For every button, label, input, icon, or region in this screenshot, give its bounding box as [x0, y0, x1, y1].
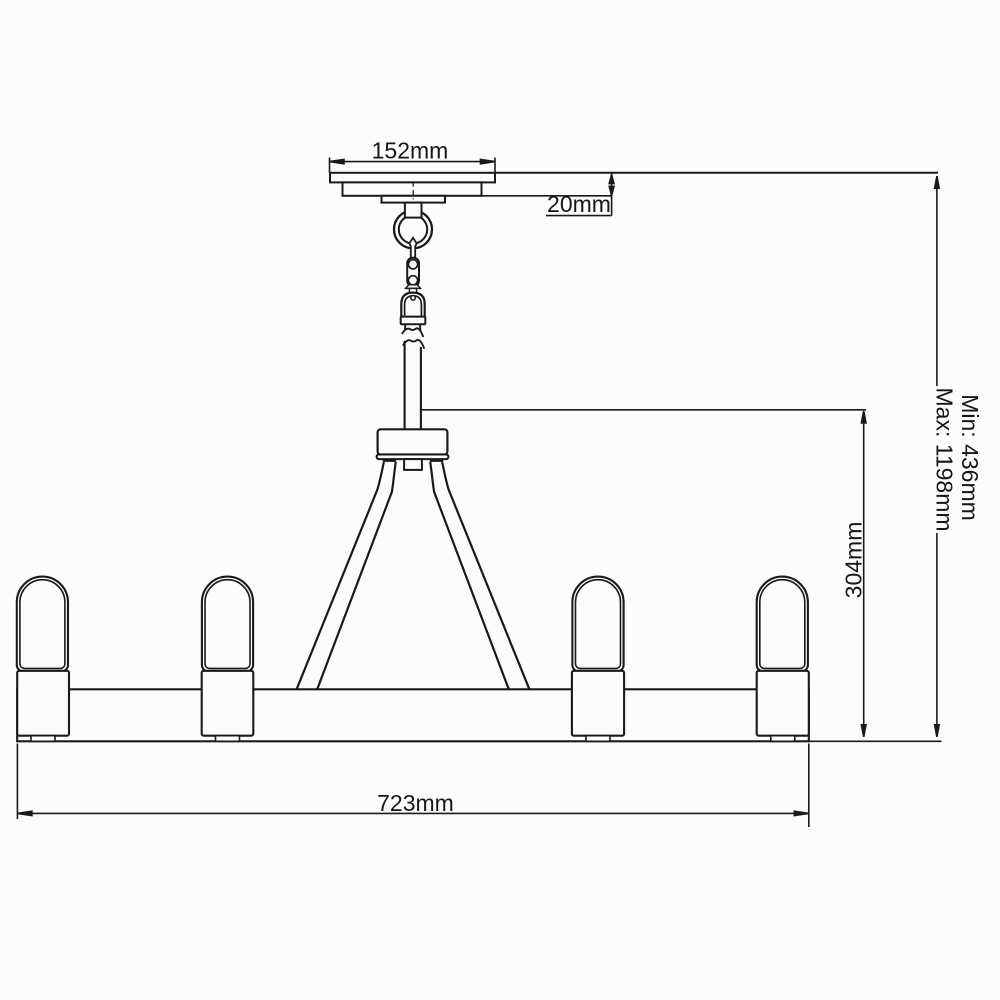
svg-text:152mm: 152mm — [372, 138, 449, 164]
svg-text:723mm: 723mm — [377, 790, 454, 816]
svg-text:304mm: 304mm — [841, 522, 867, 599]
svg-text:Max: 1198mm: Max: 1198mm — [931, 387, 957, 531]
svg-text:20mm: 20mm — [547, 191, 611, 217]
svg-text:Min: 436mm: Min: 436mm — [957, 394, 983, 521]
